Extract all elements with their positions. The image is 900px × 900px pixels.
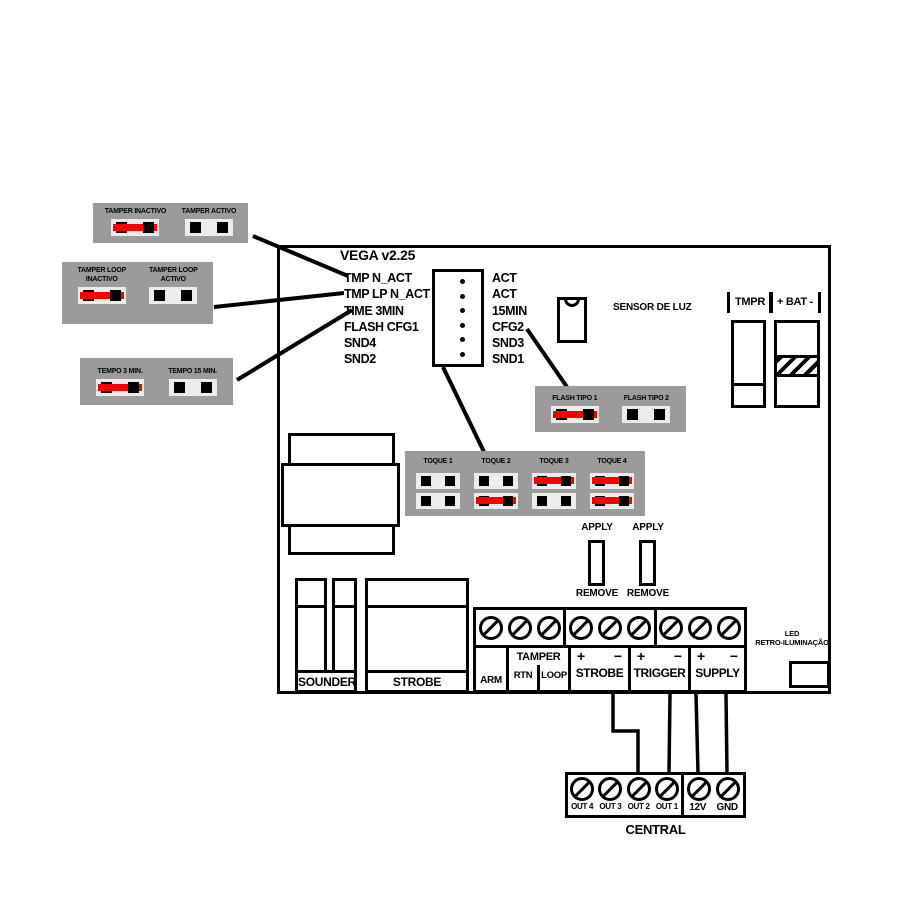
screw-terminal-icon xyxy=(688,616,712,640)
legend-option-label: TOQUE 4 xyxy=(597,457,626,466)
remove-label: REMOVE xyxy=(622,588,674,599)
12v-label: 12V xyxy=(689,802,706,813)
pin-dot-icon xyxy=(460,308,465,313)
minus-sign: − xyxy=(674,649,682,664)
legend-option-label: FLASH TIPO 1 xyxy=(552,394,597,403)
arm-terminal-label: ARM xyxy=(476,648,506,690)
pin-label: FLASH CFG1 xyxy=(344,319,430,335)
apply-label: APPLY xyxy=(571,522,623,533)
jumper-icon xyxy=(416,473,460,489)
tamper-title: TAMPER xyxy=(509,651,568,663)
terminal-block xyxy=(654,610,744,645)
pin-dot-icon xyxy=(460,337,465,342)
pin-labels-right: ACT ACT 15MIN CFG2 SND3 SND1 xyxy=(492,270,527,368)
legend-option: TAMPER INACTIVO xyxy=(105,207,166,236)
legend-option: TEMPO 15 MIN. xyxy=(168,367,217,396)
legend-option: FLASH TIPO 1 xyxy=(551,394,599,423)
pin-label: SND4 xyxy=(344,335,430,351)
screw-terminal-icon xyxy=(627,616,651,640)
screw-terminal-icon xyxy=(508,616,532,640)
jumper-icon xyxy=(111,219,159,236)
legend-option: TAMPER ACTIVO xyxy=(182,207,237,236)
tmpr-label: TMPR xyxy=(727,292,773,313)
supply-terminal: + − SUPPLY xyxy=(688,648,744,690)
pin-label: SND2 xyxy=(344,351,430,367)
legend-option-label: TOQUE 3 xyxy=(539,457,568,466)
central-power-block: 12V GND xyxy=(681,772,746,818)
vega-board-diagram: VEGA v2.25 TAMPER INACTIVO TAMPER ACTIVO… xyxy=(0,0,900,900)
terminal-label-row: ARM TAMPER RTN LOOP + − STROBE + − TRIGG… xyxy=(473,645,747,693)
apply-jumper-icon xyxy=(588,540,605,586)
legend-option-label: TAMPER INACTIVO xyxy=(105,207,166,216)
jumper-icon xyxy=(532,493,576,509)
jumper-icon xyxy=(551,406,599,423)
pin-label: 15MIN xyxy=(492,303,527,319)
legend-option-label: TAMPER LOOP INACTIVO xyxy=(73,266,131,284)
screw-terminal-icon xyxy=(569,616,593,640)
pin-dot-icon xyxy=(460,323,465,328)
legend-option: TOQUE 3 xyxy=(532,457,576,509)
led-retro-label: LED RETRO-ILUMINAÇÃO xyxy=(746,629,838,647)
screw-terminal-icon xyxy=(537,616,561,640)
jumper-icon xyxy=(532,473,576,489)
screw-terminal-icon xyxy=(659,616,683,640)
bat-connector xyxy=(774,320,820,408)
remove-label: REMOVE xyxy=(571,588,623,599)
legend-option: TAMPER LOOP INACTIVO xyxy=(73,266,131,304)
minus-sign: − xyxy=(730,649,738,664)
legend-option-label: TAMPER LOOP ACTIVO xyxy=(144,266,202,284)
strobe-part xyxy=(365,578,469,673)
led-retro-icon xyxy=(789,661,830,688)
gnd-label: GND xyxy=(716,802,737,813)
sounder-part xyxy=(295,578,327,673)
screw-terminal-icon xyxy=(627,777,651,801)
pin-labels-left: TMP N_ACT TMP LP N_ACT TIME 3MIN FLASH C… xyxy=(344,270,430,368)
jumper-icon xyxy=(474,473,518,489)
tamper-rtn-label: RTN xyxy=(509,665,537,690)
jumper-icon xyxy=(149,287,197,304)
pin-label: SND1 xyxy=(492,351,527,367)
screw-terminal-icon xyxy=(570,777,594,801)
sounder-label: SOUNDER xyxy=(295,670,357,693)
screw-terminal-icon xyxy=(598,777,622,801)
pin-label: TMP N_ACT xyxy=(344,270,430,286)
legend-option-label: TAMPER ACTIVO xyxy=(182,207,237,216)
screw-terminal-icon xyxy=(598,616,622,640)
central-output-block: OUT 4 OUT 3 OUT 2 OUT 1 xyxy=(565,772,684,818)
pin-dot-icon xyxy=(460,352,465,357)
battery-hatch-icon xyxy=(777,355,817,377)
legend-tamper-loop: TAMPER LOOP INACTIVO TAMPER LOOP ACTIVO xyxy=(62,262,213,324)
screw-terminal-icon xyxy=(655,777,679,801)
jumper-icon xyxy=(474,493,518,509)
jumper-icon xyxy=(78,287,126,304)
out1-label: OUT 1 xyxy=(656,802,678,811)
trigger-terminal: + − TRIGGER xyxy=(628,648,688,690)
pin-dot-icon xyxy=(460,294,465,299)
apply-label: APPLY xyxy=(622,522,674,533)
light-sensor-label: SENSOR DE LUZ xyxy=(613,302,692,313)
out4-label: OUT 4 xyxy=(571,802,593,811)
terminal-block xyxy=(563,610,653,645)
legend-option-label: TOQUE 1 xyxy=(423,457,452,466)
pin-label: ACT xyxy=(492,286,527,302)
trigger-terminal-label: TRIGGER xyxy=(631,666,688,680)
bat-label: + BAT - xyxy=(769,292,821,313)
legend-tamper: TAMPER INACTIVO TAMPER ACTIVO xyxy=(93,203,248,243)
legend-tempo: TEMPO 3 MIN. TEMPO 15 MIN. xyxy=(80,358,233,405)
jumper-icon xyxy=(416,493,460,509)
legend-flash: FLASH TIPO 1 FLASH TIPO 2 xyxy=(535,386,686,432)
jumper-icon xyxy=(590,473,634,489)
jumper-icon xyxy=(185,219,233,236)
board-title: VEGA v2.25 xyxy=(340,247,415,263)
legend-toque: TOQUE 1 TOQUE 2 TOQUE 3 TOQUE 4 xyxy=(405,451,645,516)
legend-option-label: FLASH TIPO 2 xyxy=(624,394,669,403)
out2-label: OUT 2 xyxy=(628,802,650,811)
transformer-top xyxy=(288,433,395,466)
central-label: CENTRAL xyxy=(565,822,746,837)
jumper-icon xyxy=(590,493,634,509)
sounder-part xyxy=(332,578,357,673)
strobe-terminal: + − STROBE xyxy=(568,648,628,690)
screw-terminal-icon xyxy=(687,777,711,801)
tamper-terminal: TAMPER RTN LOOP xyxy=(506,648,568,690)
minus-sign: − xyxy=(614,649,622,664)
light-sensor-icon xyxy=(557,297,587,343)
terminal-block xyxy=(476,610,563,645)
pin-dot-icon xyxy=(460,279,465,284)
terminal-screw-row xyxy=(473,607,747,648)
pin-label: CFG2 xyxy=(492,319,527,335)
jumper-icon xyxy=(169,379,217,396)
pin-label: TMP LP N_ACT xyxy=(344,286,430,302)
screw-terminal-icon xyxy=(717,616,741,640)
transformer-core xyxy=(281,463,400,527)
legend-option: TOQUE 1 xyxy=(416,457,460,509)
out3-label: OUT 3 xyxy=(599,802,621,811)
led-label-line1: LED xyxy=(746,629,838,638)
apply-jumper-icon xyxy=(639,540,656,586)
legend-option: TAMPER LOOP ACTIVO xyxy=(144,266,202,304)
pin-label: ACT xyxy=(492,270,527,286)
jumper-icon xyxy=(622,406,670,423)
jumper-header-block xyxy=(432,269,484,367)
pin-label: TIME 3MIN xyxy=(344,303,430,319)
tmpr-connector xyxy=(731,320,766,408)
transformer-bottom xyxy=(288,524,395,555)
strobe-block-label: STROBE xyxy=(365,670,469,693)
plus-sign: + xyxy=(697,649,705,664)
led-label-line2: RETRO-ILUMINAÇÃO xyxy=(746,638,838,647)
legend-option: TOQUE 4 xyxy=(590,457,634,509)
tamper-loop-label: LOOP xyxy=(537,665,568,690)
legend-option-label: TEMPO 15 MIN. xyxy=(168,367,217,376)
legend-option-label: TOQUE 2 xyxy=(481,457,510,466)
pin-label: SND3 xyxy=(492,335,527,351)
supply-terminal-label: SUPPLY xyxy=(691,666,744,680)
plus-sign: + xyxy=(637,649,645,664)
legend-option-label: TEMPO 3 MIN. xyxy=(98,367,143,376)
screw-terminal-icon xyxy=(716,777,740,801)
jumper-icon xyxy=(96,379,144,396)
screw-terminal-icon xyxy=(479,616,503,640)
legend-option: FLASH TIPO 2 xyxy=(622,394,670,423)
strobe-terminal-label: STROBE xyxy=(571,666,628,680)
legend-option: TOQUE 2 xyxy=(474,457,518,509)
legend-option: TEMPO 3 MIN. xyxy=(96,367,144,396)
plus-sign: + xyxy=(577,649,585,664)
